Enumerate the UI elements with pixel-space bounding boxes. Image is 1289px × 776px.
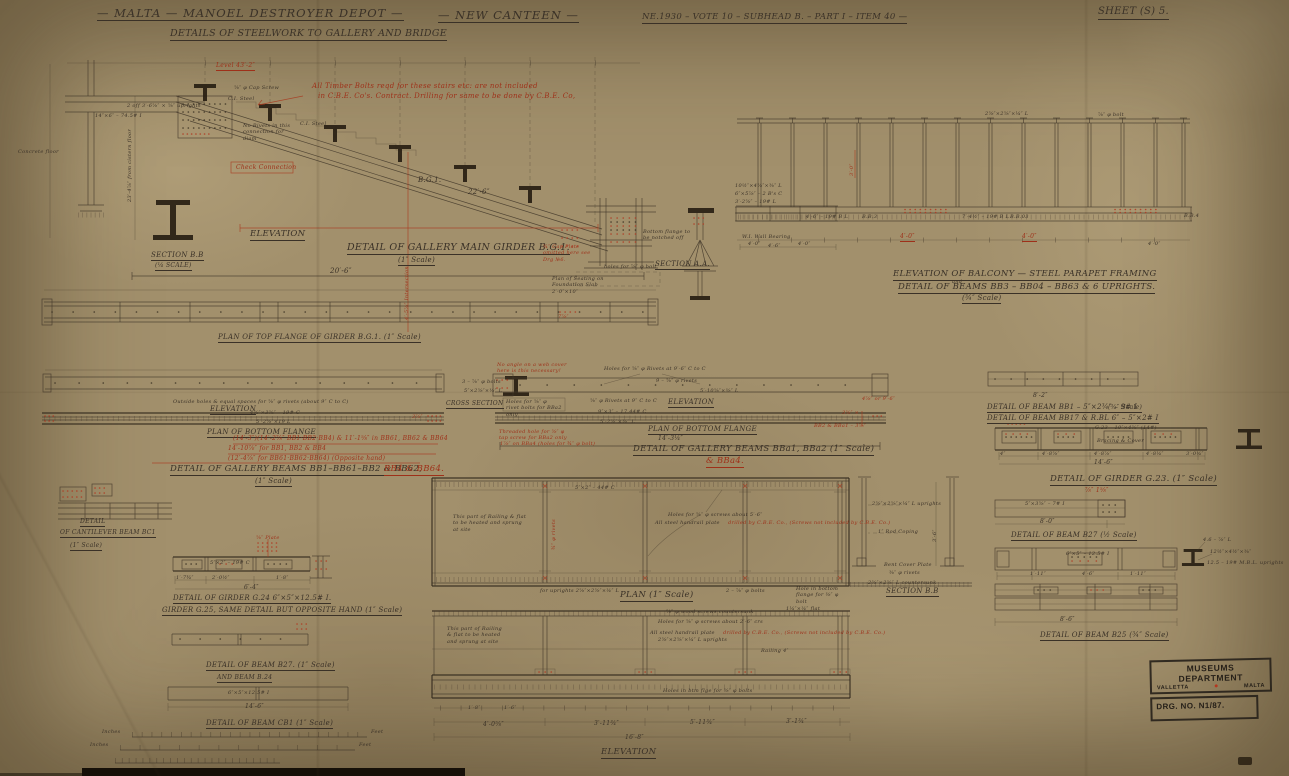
dim-total: 14′-6″ xyxy=(245,703,264,711)
note-ci-steel: C.I. Steel xyxy=(228,96,254,102)
label-bb03: B.B.03 xyxy=(1010,214,1029,220)
dim-red: 3⅝″ × xyxy=(842,410,859,416)
note-seating: Plan of Seating on Foundation Slab 2′-0″… xyxy=(552,276,616,295)
note-angle-2: 6″×5⅞″ – 2 B's C xyxy=(735,191,782,197)
label-bb4: B.B.4 xyxy=(1184,213,1199,219)
dim-total: 6′-4″ xyxy=(244,584,259,592)
note-ci-steel: C.I. Steel xyxy=(300,121,326,127)
scalebar-inches: Inches xyxy=(102,729,121,735)
balcony-title-1: ELEVATION OF BALCONY — STEEL PARAPET FRA… xyxy=(893,269,1157,281)
note-rivets: ⅝″ φ Rivets at 9″ C to C xyxy=(590,398,657,404)
note-uprights: for uprights 2⅝″×2⅝″×¼″ L xyxy=(540,588,619,594)
scalebar-feet: Feet xyxy=(359,742,371,748)
balcony-title-2: DETAIL OF BEAMS BB3 – BB04 – BB63 & 6 UP… xyxy=(898,282,1155,294)
dim-red: BB2 & BBa1 – 3⅞″ xyxy=(814,423,866,429)
stamp-box: MUSEUMS DEPARTMENT VALLETTA ● MALTA xyxy=(1149,658,1272,695)
note-cell: G.23 – 10″×4⅝″ (14#) xyxy=(1095,425,1157,431)
dim-bay: 4′-8⅞″ xyxy=(1094,451,1112,457)
dim-bay: 3′-1¾″ xyxy=(786,718,807,726)
note-uprights: 2 off 3′-6⅝″ × ⅝″ uprights xyxy=(127,103,201,109)
detail-scale: (1″ Scale) xyxy=(255,477,292,487)
stamp-country: MALTA xyxy=(1244,682,1265,688)
detail-title-bba-red: & BBa4. xyxy=(706,456,744,468)
detail-title-b27-right: DETAIL OF BEAM B27 (½ Scale) xyxy=(1011,531,1137,541)
detail-title-bba: DETAIL OF GALLERY BEAMS BBa1, BBa2 (1″ S… xyxy=(633,444,874,456)
note-member-2: 7′-4½″ – 19# B L xyxy=(962,214,1009,220)
dim-total: 14′-6″ xyxy=(1094,459,1113,467)
note-angle: 5′-10⅝″×⅜″ L xyxy=(700,388,739,394)
note-bolt: ⅞″ φ bolt xyxy=(1098,112,1124,118)
note-angle-1: 10½″×4⅝″×⅜″ L xyxy=(735,183,782,189)
note-timber-bolts-2: in C.B.E. Co's. Contract. Drilling for s… xyxy=(318,92,575,101)
dim-bay: 4′-0″ xyxy=(748,241,761,247)
drawing-sheet: — MALTA — MANOEL DESTROYER DEPOT — — NEW… xyxy=(0,0,1289,776)
detail-scale: (1″ Scale) xyxy=(398,256,435,266)
dim-bay: 3′-11¾″ xyxy=(594,720,619,728)
note-handrail-red: drilled by C.B.E. Co., (Screws not inclu… xyxy=(723,630,885,636)
dim-post: 3′-0″ xyxy=(849,163,855,176)
note-angle: 5′-2⅝″×⅜″ L xyxy=(600,419,635,425)
dim-4-0-red: 4′-0″ xyxy=(1022,233,1037,242)
dim-8-2: 8′-2″ xyxy=(1033,392,1048,400)
dim-8-0: 8′-0″ xyxy=(1040,518,1055,526)
detail-title-bb17: DETAIL OF BEAM BB17 & R.BL 6″ – 5″×2# I xyxy=(987,414,1159,424)
detail-title-g24: DETAIL OF GIRDER G.24 6″×5″×12.5# I. xyxy=(173,594,331,604)
note-angle: 5′-2⅝″×19 L xyxy=(256,419,291,425)
note-timber-bolts-1: All Timber Bolts reqd for these stairs e… xyxy=(312,82,538,91)
note-holes-flange: Holes in btm flge for ⅜″ φ bolts xyxy=(663,688,752,694)
note-cell: 6″×5″×12.5# I xyxy=(228,690,269,696)
label-elevation-big: ELEVATION xyxy=(601,747,656,759)
stamp-emblem-icon: ● xyxy=(1214,683,1219,690)
note-rivets: 9 – ⅝″ φ rivets xyxy=(656,378,697,384)
dim-bay: 1′-11″ xyxy=(1030,571,1046,577)
dim-tick: 1′-6″ xyxy=(504,705,517,711)
scalebar-inches: Inches xyxy=(90,742,109,748)
detail-title-main-girder: DETAIL OF GALLERY MAIN GIRDER B.G.1. xyxy=(347,242,570,255)
note-holes-bolt: holes for ⅞″ φ bolt xyxy=(604,264,657,270)
dim-bay: 4′-0″ xyxy=(798,241,811,247)
note-rivets-vert: ¾″ φ rivets xyxy=(551,519,557,550)
note-holes: Holes for ⅝″ φ Rivets at 9′-6″ C to C xyxy=(604,366,706,372)
dim-4-0-red: 4′-0″ xyxy=(900,233,915,242)
note-handrail-red: drilled by C.B.E. Co., (Screws not inclu… xyxy=(728,520,890,526)
note-screws: Holes for ⅝″ φ screws about 2′-6″ crs xyxy=(658,619,763,625)
note-uprights: 2⅝″×2⅝″×¼″ L uprights xyxy=(658,637,727,643)
note-section: 4.6 – ⅞″ L xyxy=(1203,537,1231,543)
note-bolts: 2 – ⅞″ φ bolts xyxy=(726,588,765,594)
page-title: — MALTA — MANOEL DESTROYER DEPOT — xyxy=(97,6,404,21)
note-holes-box: Holes for ⅝″ φ rivet bolts for BBa2 only xyxy=(506,399,562,418)
dim-bay: 2′-0½″ xyxy=(212,575,230,581)
note-threaded: Threaded hole for ⅝″ φ tap screw for BBa… xyxy=(499,429,569,442)
dim-bay: 1′-8″ xyxy=(276,575,289,581)
label-plan: PLAN (1″ Scale) xyxy=(620,590,693,602)
label-plan-bottom-flange: PLAN OF BOTTOM FLANGE xyxy=(648,425,757,435)
note-notch: Bottom flange to be notched off xyxy=(643,229,697,242)
detail-title-b25: DETAIL OF BEAM B25 (¾″ Scale) xyxy=(1040,631,1169,641)
drawing-subtitle: DETAILS OF STEELWORK TO GALLERY AND BRID… xyxy=(170,28,447,41)
note-bba4: 1⅞″ on BBa4 (holes for ¾″ φ bolt) xyxy=(500,441,595,447)
detail-scale: (¾″ Scale) xyxy=(1108,404,1142,413)
note-channel: 4⅝″×3⅝″ – 19# C xyxy=(250,410,300,416)
label-section-bb-left: SECTION B.B xyxy=(151,251,204,261)
label-elevation: ELEVATION xyxy=(250,229,305,241)
dim-red-1: (14′-3″)(14′-2⅞″ BB1·BB2·BB4) & 11′-1⅝″ … xyxy=(233,435,448,443)
dim-red: ⅞″ 1⅝″ xyxy=(1085,487,1109,495)
page-reference: NE.1930 – VOTE 10 – SUBHEAD B. – PART I … xyxy=(642,12,907,24)
note-plate: ⅝″ Plate xyxy=(256,535,280,541)
dim-total: 16′-8″ xyxy=(625,734,644,742)
detail-title-gallery-beams-red: BB4 & BB64. xyxy=(384,464,444,476)
dim-bay: 5′-11¾″ xyxy=(690,719,715,727)
note-section: 12.5 – 19# M.B.L. uprights xyxy=(1207,560,1284,566)
detail-title-cb1: DETAIL OF BEAM CB1 (1″ Scale) xyxy=(206,719,333,729)
note-handrail: All steel handrail plate xyxy=(650,630,715,636)
note-cap-plate: ¾″ Cap Plate omitted here see Drg №6. xyxy=(543,244,591,263)
note-channel: 9″×3″ – 17.44# C xyxy=(598,409,647,415)
detail-title-g25: GIRDER G.25, SAME DETAIL BUT OPPOSITE HA… xyxy=(162,606,402,616)
dim-bay: 1′-7¾″ xyxy=(176,575,194,581)
dim-bay: 4′-0⅝″ xyxy=(483,721,504,729)
dim-red: 3⅞″ xyxy=(412,414,423,420)
note-beam-size: 14″×6″ – 74.5# I xyxy=(95,113,142,119)
dim-4-6: 4′-6″ xyxy=(768,243,781,249)
detail-title-g23: DETAIL OF GIRDER G.23. (1″ Scale) xyxy=(1050,474,1217,486)
stamp-department: MUSEUMS DEPARTMENT xyxy=(1153,662,1267,685)
note-cover-plate: Bent Cover Plate xyxy=(884,562,932,568)
note-member-1: 4′-6″ – 19# B L xyxy=(806,214,848,220)
dim-bay: 3′-0¼″ xyxy=(1186,451,1204,457)
detail-scale: (1″ Scale) xyxy=(70,542,102,551)
label-section-bb-scale: (¼ SCALE) xyxy=(155,262,192,271)
dim-section: 3′-6″ xyxy=(932,529,938,542)
dim-bay: 4′-8⅝″ xyxy=(1042,451,1060,457)
note-uprights: 2⅝″×2⅝″×¼″ L uprights xyxy=(872,501,941,507)
note-capscrew: ⅝″ φ Cap Screw xyxy=(234,85,279,91)
dim-level: Level 43′-2″ xyxy=(216,62,255,71)
dim-bay: 4″ xyxy=(1000,451,1006,457)
balcony-scale: (¾″ Scale) xyxy=(962,294,1001,304)
dim-red-2: 14′-10⅞″ for BB1, BB2 & BB4 xyxy=(228,445,326,453)
note-wall-bearing: W.I. Wall Bearing xyxy=(742,234,791,240)
dim-22-6: 22′-6″ xyxy=(468,188,490,197)
note-screws: Holes for ⅝″ φ screws about 5′-6″ xyxy=(668,512,762,518)
label-section-aa: SECTION A.A. xyxy=(655,260,710,270)
label-bb3: B.B.3 xyxy=(862,214,877,220)
linework xyxy=(0,0,1289,776)
dim-bay: 4′-8¼″ xyxy=(1146,451,1164,457)
dim-8-6: 8′-6″ xyxy=(1060,616,1075,624)
label-cross-section: CROSS SECTION xyxy=(446,400,504,409)
note-upright-angle: 2⅝″×2⅝″×¼″ L xyxy=(985,111,1028,117)
stamp-drawing-number: DRG. NO. N1/87. xyxy=(1150,695,1259,721)
dim-bay: 4′-6″ xyxy=(1082,571,1095,577)
detail-title-b27-left: DETAIL OF BEAM B27. (1″ Scale) xyxy=(206,661,335,671)
note-railing: This part of Railing & flat to be heated… xyxy=(453,514,527,533)
sheet-number: SHEET (S) 5. xyxy=(1098,6,1169,20)
dim-cistern: 23′-4⅞″ from cistern floor xyxy=(127,129,133,202)
dim-tick: 1′-8″ xyxy=(468,705,481,711)
note-handrail: All steel handrail plate xyxy=(655,520,720,526)
note-coping: 1″ Rod Coping xyxy=(878,529,918,535)
detail-title-cantilever-1: DETAIL xyxy=(80,518,105,527)
note-section: 12½″×4½″×⅜″ xyxy=(1210,549,1251,555)
note-angle: 5″×2⅝″×⅜″ L xyxy=(464,388,502,394)
note-channel: 5″×2″ – 44# C xyxy=(575,485,615,491)
note-web-query: No angle on a web cover here is this nec… xyxy=(497,362,571,375)
page-title-canteen: — NEW CANTEEN — xyxy=(438,8,579,23)
note-cell: 5″×2″ – 19# C xyxy=(210,560,250,566)
dim-20-6: 20′-6″ xyxy=(330,267,352,276)
detail-title-b24: AND BEAM B.24 xyxy=(217,674,272,683)
note-bolts: 3 – ⅞″ φ bolts xyxy=(462,379,501,385)
detail-title-cantilever-2: OF CANTILEVER BEAM BC1 xyxy=(60,529,156,538)
note-countersunk: 2⅝″×2⅝″ L countersunk xyxy=(868,580,936,586)
dim-intersection: 4′-5⅞″ Intersection xyxy=(404,266,410,320)
dim-bay: 1′-11″ xyxy=(1130,571,1146,577)
plan-top-flange-title: PLAN OF TOP FLANGE OF GIRDER B.G.1. (1″ … xyxy=(218,333,421,343)
note-cell: 6″×5″ – 12.5# I xyxy=(1066,551,1109,557)
note-cell: 5″×3⅝″ – 7# I xyxy=(1025,501,1065,507)
dim-red: 7⅞″ xyxy=(558,314,569,320)
museum-stamp: MUSEUMS DEPARTMENT VALLETTA ● MALTA DRG.… xyxy=(1149,658,1272,722)
note-railing-4: Railing 4″ xyxy=(761,648,789,654)
note-concrete-floor: Concrete floor xyxy=(18,149,59,155)
note-bracing: Bracing & Cover xyxy=(1097,438,1144,444)
note-holes: Outside holes & equal spaces for ⅝″ φ ri… xyxy=(173,399,349,405)
dim-red-3: (12′-4⅞″ for BB61·BB62·BB64) (Opposite h… xyxy=(228,455,385,463)
dim-red: 4⅞″ or 9′-6″ xyxy=(862,396,895,402)
label-elevation: ELEVATION xyxy=(668,398,714,408)
note-railing: This part of Railing & flat to be heated… xyxy=(447,626,507,645)
dim-14-3: 14′-3¼″ xyxy=(658,435,683,443)
note-hole-flange: Hole in bottom flange for ⅜″ φ bolt xyxy=(796,586,850,605)
note-flat: 1¼″×¼″ flat xyxy=(786,606,820,612)
note-no-rivets: No Rivets in this connection for diam xyxy=(243,123,293,142)
dim-bay: 4′-0″ xyxy=(1148,241,1161,247)
scalebar-feet: Feet xyxy=(371,729,383,735)
label-section-bb-right: SECTION B.B xyxy=(886,587,939,597)
note-rivets: ⅜″ φ rivets xyxy=(889,570,920,576)
label-bg1: B.G.1. xyxy=(418,176,441,185)
stamp-city: VALLETTA xyxy=(1157,684,1189,691)
note-wood-screws: ⅝″ φ wood screws countersunk xyxy=(666,609,754,615)
note-angle-3: 3′-2⅝″ – 19# L xyxy=(735,199,776,205)
note-check-connection: Check Connection xyxy=(236,164,296,172)
